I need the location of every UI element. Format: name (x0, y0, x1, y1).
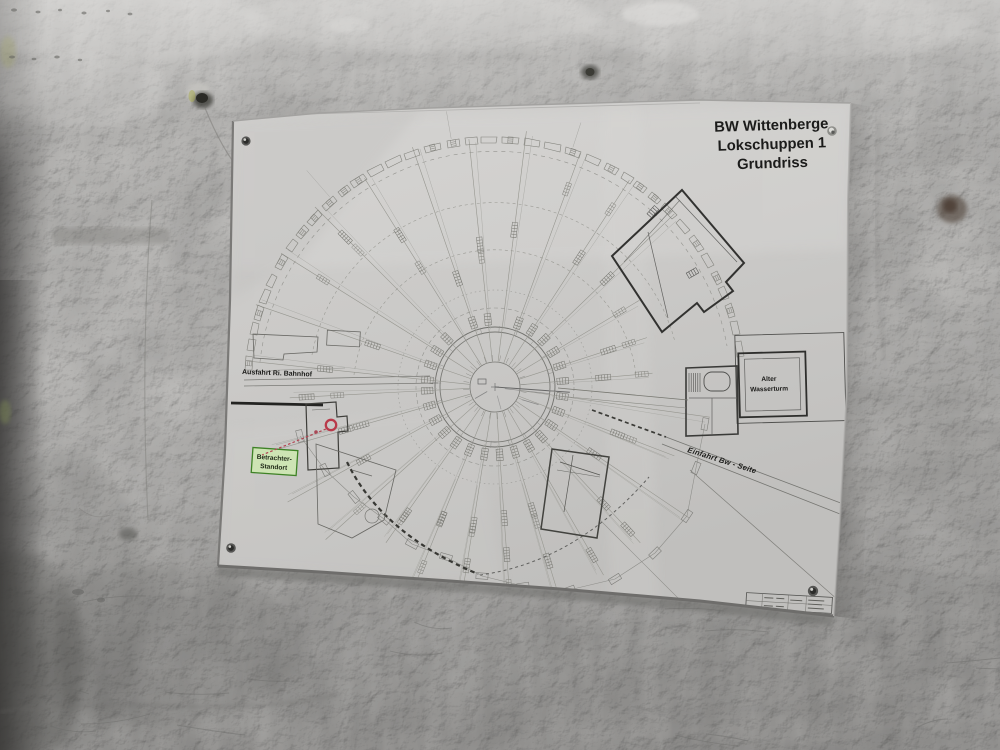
svg-text:Wasserturm: Wasserturm (750, 385, 788, 393)
svg-text:Grundriss: Grundriss (737, 155, 808, 173)
svg-text:Lokschuppen 1: Lokschuppen 1 (717, 135, 826, 154)
svg-text:Alter: Alter (761, 376, 777, 383)
